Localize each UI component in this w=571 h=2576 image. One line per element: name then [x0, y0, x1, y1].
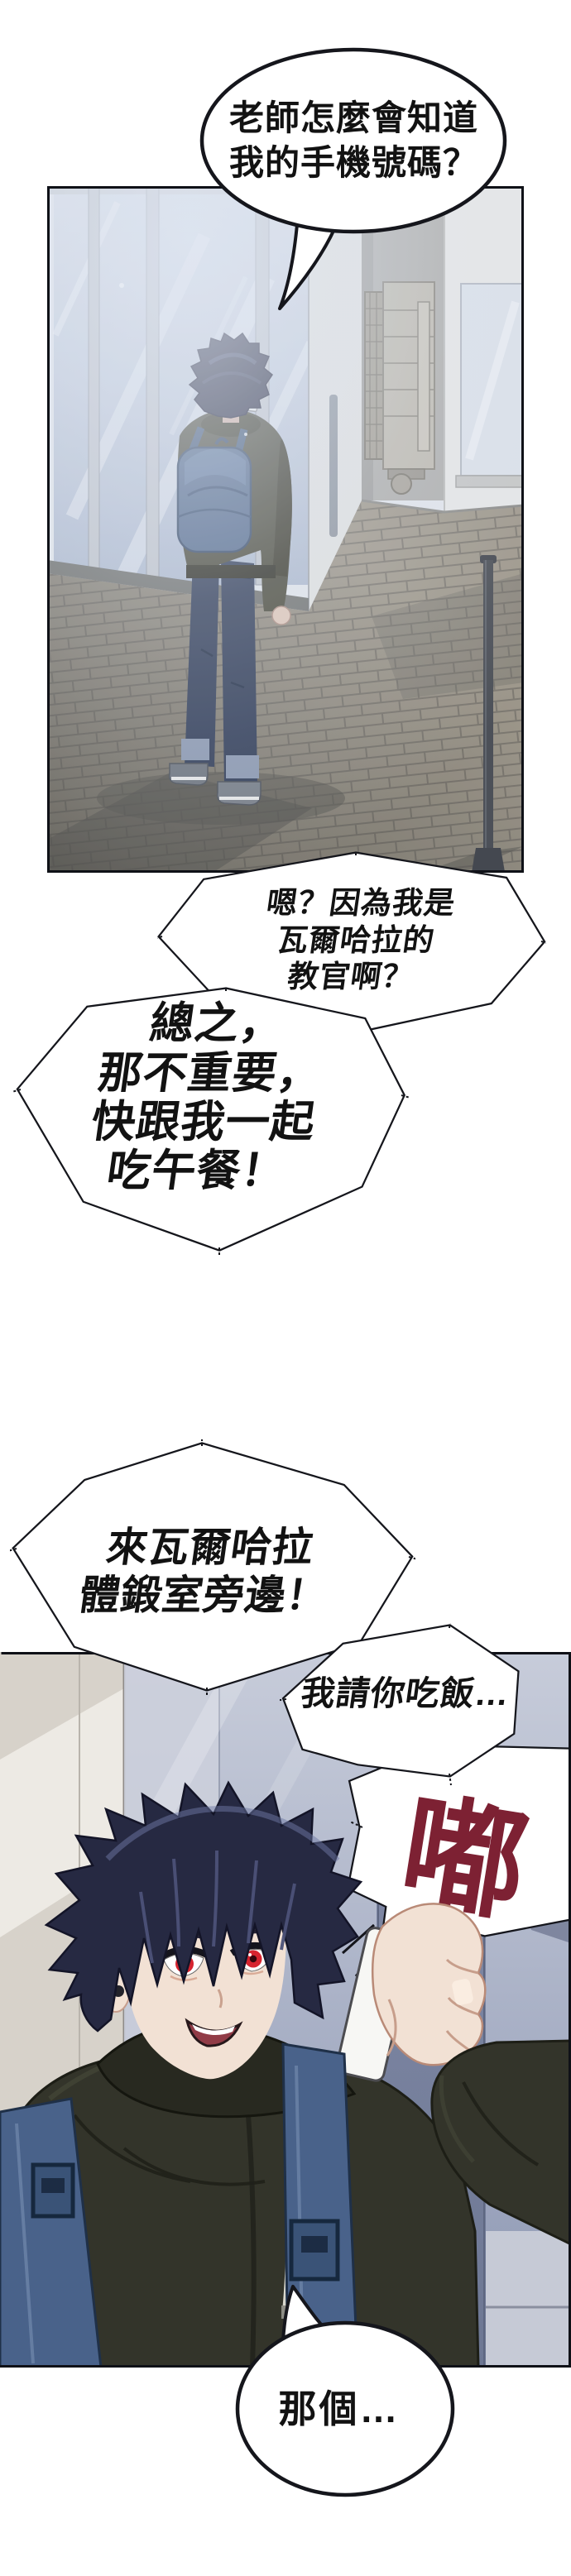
- bubble-line: 老師怎麼會知道: [229, 96, 478, 141]
- bubble-line: 體鍛室旁邊！: [76, 1573, 331, 1621]
- bubble-line: 瓦爾哈拉的: [275, 922, 437, 959]
- bubble-text-lunch: 總之， 那不重要， 快跟我一起 吃午餐！: [36, 1003, 377, 1193]
- bubble-line: 我請你吃飯…: [299, 1673, 513, 1714]
- bubble-line: 總之，: [146, 999, 287, 1048]
- bubble-text-instructor: 嗯？因為我是 瓦爾哈拉的 教官啊？: [198, 879, 513, 1003]
- bubble-line: 那不重要，: [95, 1049, 325, 1098]
- bubble-line: 快跟我一起: [89, 1098, 319, 1147]
- bubble-line: 吃午餐！: [103, 1147, 289, 1195]
- bubble-text-treat: 我請你吃飯…: [290, 1673, 520, 1716]
- bubble-line: 嗯？因為我是: [264, 885, 458, 922]
- bubble-text-that: 那個…: [248, 2381, 430, 2439]
- bubble-line: 那個…: [279, 2387, 401, 2432]
- bubble-text-gym: 來瓦爾哈拉 體鍛室旁邊！: [38, 1520, 376, 1624]
- comic-page: 嘟: [0, 0, 571, 2576]
- bubble-line: 我的手機號碼？: [229, 141, 478, 185]
- bubble-line: 來瓦爾哈拉: [103, 1525, 317, 1573]
- bubble-text-teacher-phone: 老師怎麼會知道 我的手機號碼？: [211, 87, 497, 194]
